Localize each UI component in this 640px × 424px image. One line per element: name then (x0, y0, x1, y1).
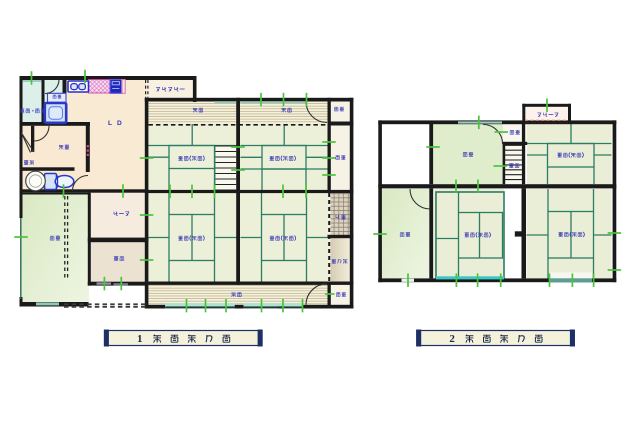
svg-text:L D: L D (108, 120, 123, 127)
svg-text:1: 1 (137, 333, 143, 345)
svg-text:2: 2 (449, 333, 455, 345)
